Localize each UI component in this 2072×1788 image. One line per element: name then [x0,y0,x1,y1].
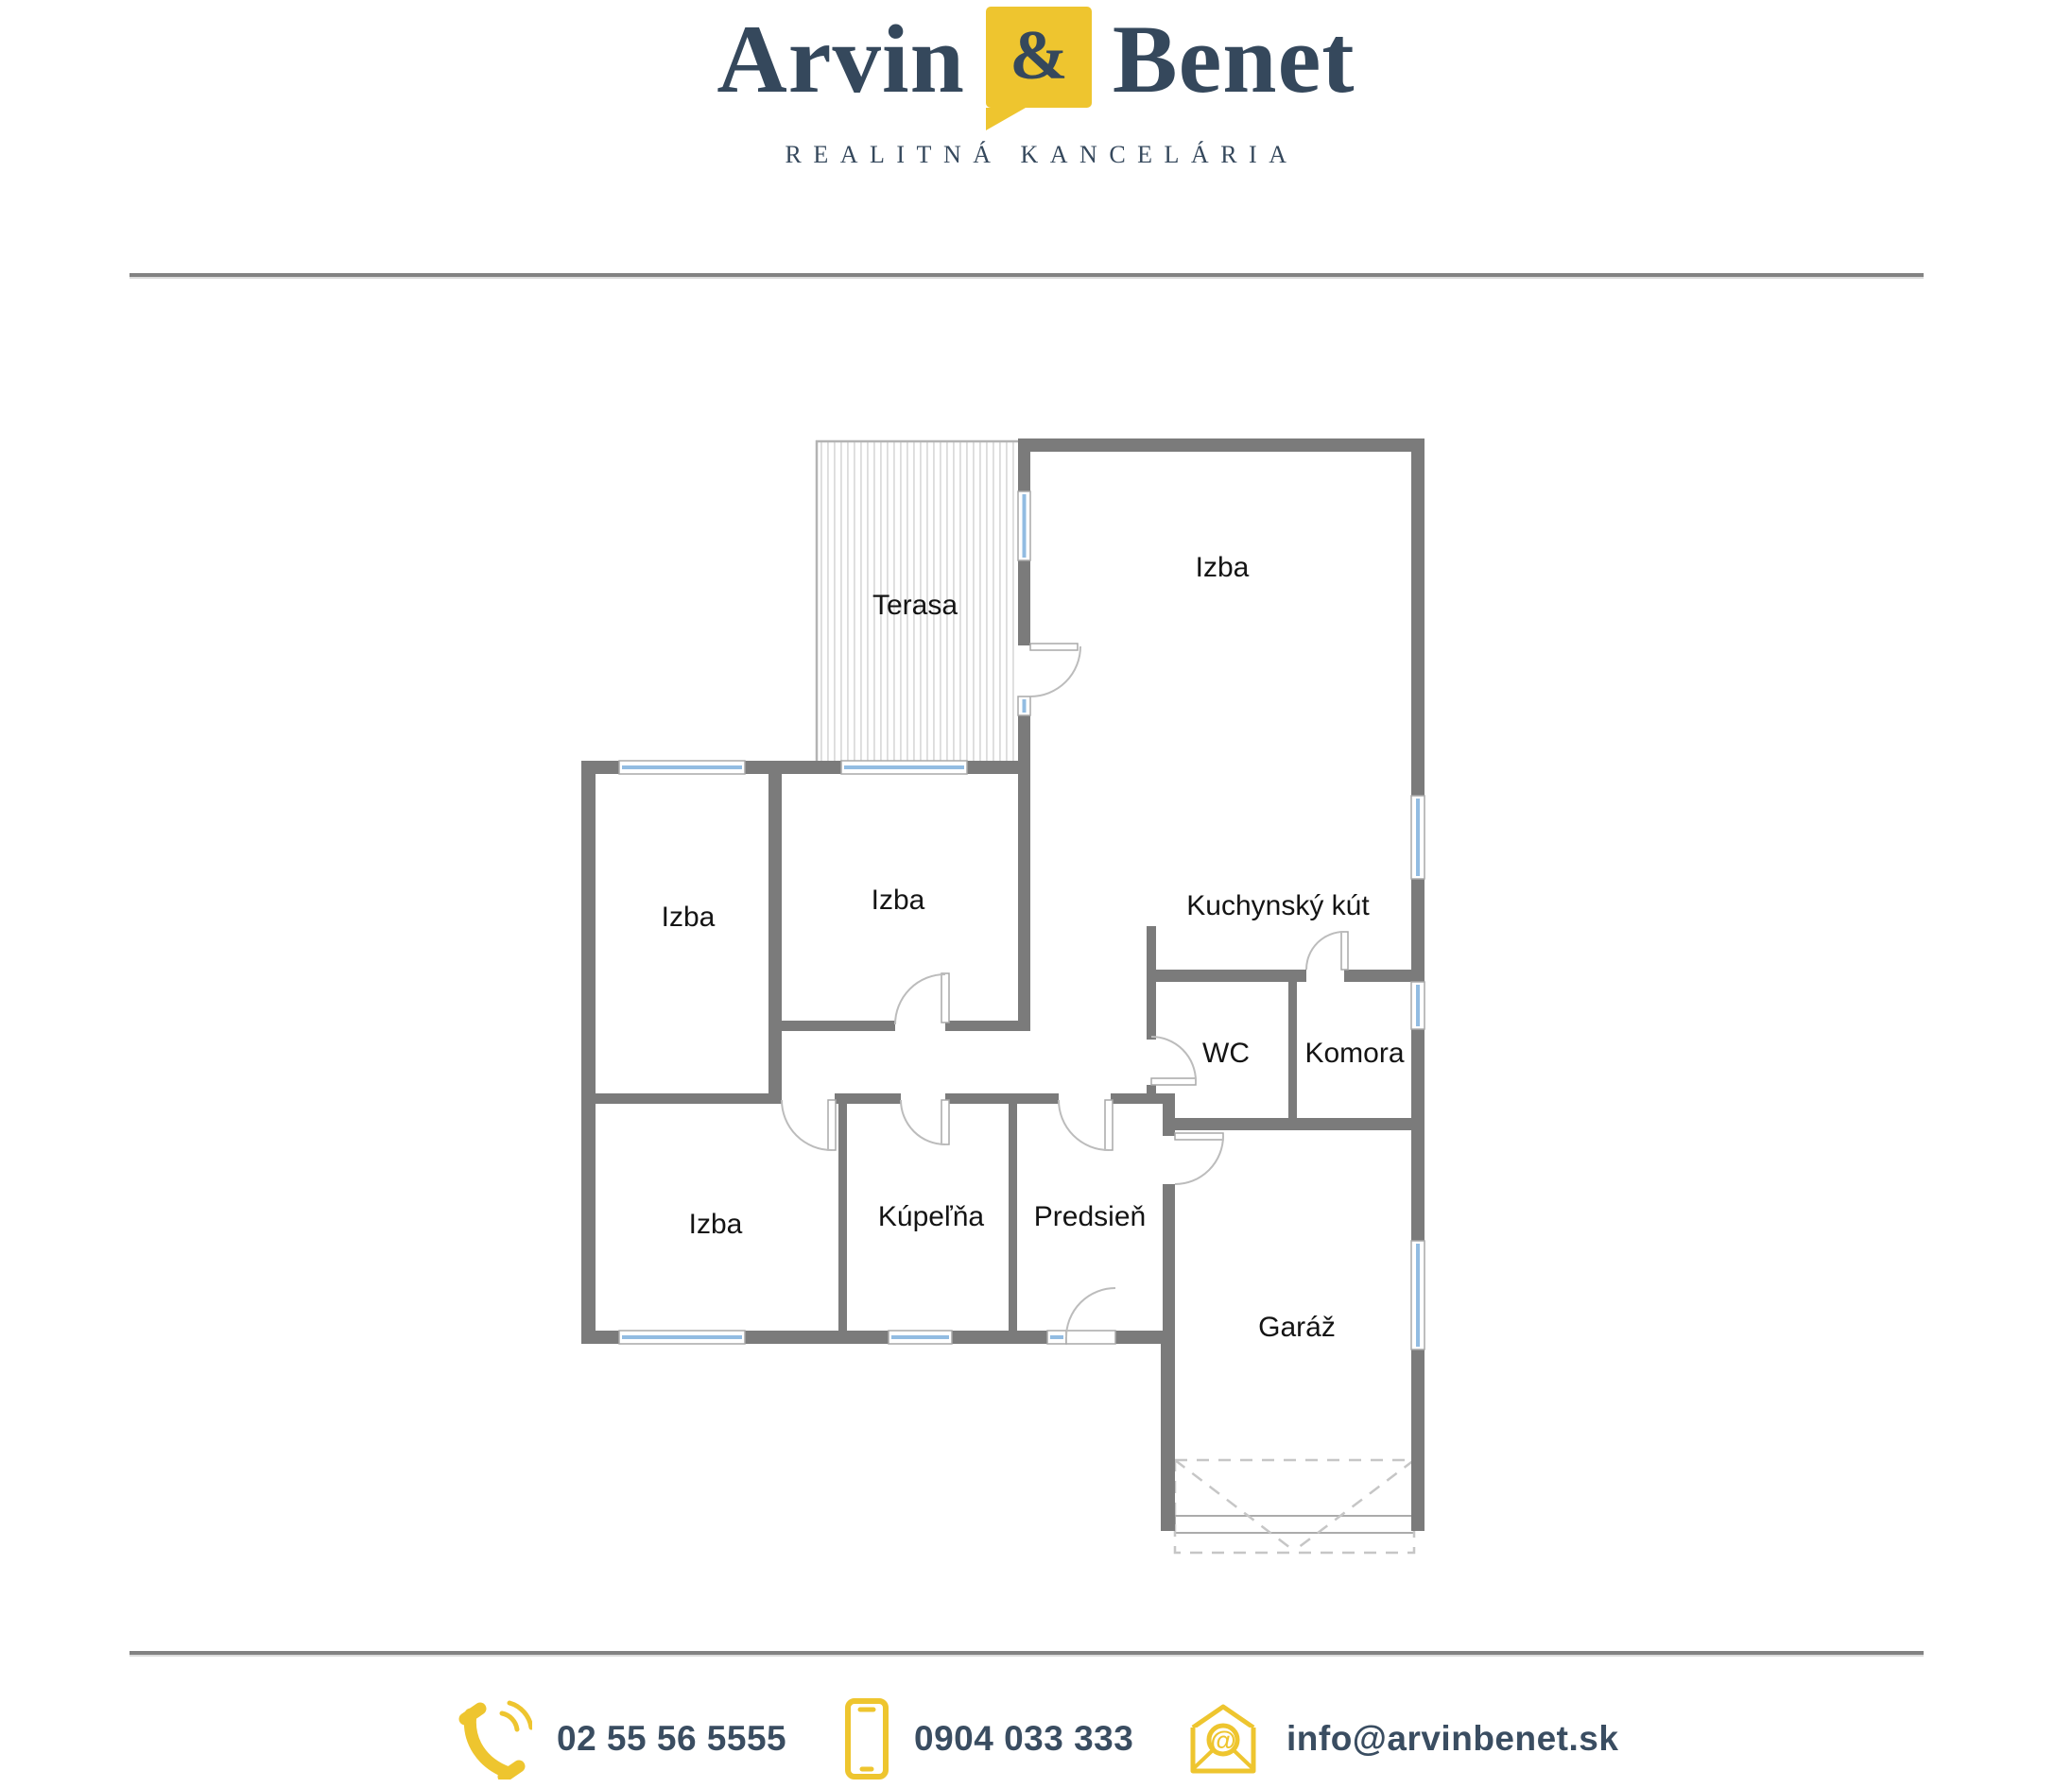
window [889,1331,952,1344]
window [1411,796,1424,879]
room-label-izba-living: Izba [1196,552,1250,583]
window [1047,1331,1066,1344]
bottom-divider [129,1651,1924,1657]
window [1411,1241,1424,1350]
room-label-izba-bottom: Izba [689,1209,743,1240]
email-icon: @ [1184,1700,1262,1778]
flyer-page: Arvin & Benet REALITNÁ KANCELÁRIA [0,0,2072,1788]
room-label-izba-middle: Izba [872,885,925,916]
door-predsien [1059,1100,1113,1150]
mobile-number: 0904 033 333 [914,1719,1133,1759]
door-izba-middle [895,973,949,1024]
window [1018,696,1030,715]
room-label-kuchynsky-kut: Kuchynský kút [1186,890,1370,921]
door-wc [1151,1037,1196,1085]
email-address: info@arvinbenet.sk [1286,1719,1618,1759]
contact-landline: 02 55 56 5555 [457,1696,786,1781]
window [841,761,967,774]
door-garage-inner [1175,1133,1223,1184]
door-izba-bottom [782,1100,836,1150]
door-kupelna [901,1100,949,1144]
room-label-wc: WC [1202,1038,1250,1069]
room-label-kupelna: Kúpeľňa [878,1201,984,1232]
door-terrace [1030,644,1080,696]
room-label-garaz: Garáž [1258,1312,1336,1343]
door-entrance [1066,1288,1115,1344]
door-kitchen [1306,932,1348,970]
landline-number: 02 55 56 5555 [557,1719,786,1759]
at-symbol: @ [1210,1726,1235,1755]
room-label-predsien: Predsieň [1034,1201,1146,1232]
contact-mobile: 0904 033 333 [844,1696,1133,1781]
garage-door [1175,1460,1414,1553]
room-label-komora: Komora [1304,1038,1404,1069]
window [1018,491,1030,560]
phone-icon [457,1698,532,1779]
mobile-phone-icon [844,1697,889,1780]
window [1411,982,1424,1029]
floor-plan: Terasa Izba Izba Izba Kuchynský kút WC K… [0,0,2072,1788]
window [619,1331,745,1344]
window [619,761,745,774]
contact-email: @ info@arvinbenet.sk [1184,1696,1618,1781]
room-label-terasa: Terasa [872,590,958,621]
room-label-izba-left: Izba [662,902,716,933]
